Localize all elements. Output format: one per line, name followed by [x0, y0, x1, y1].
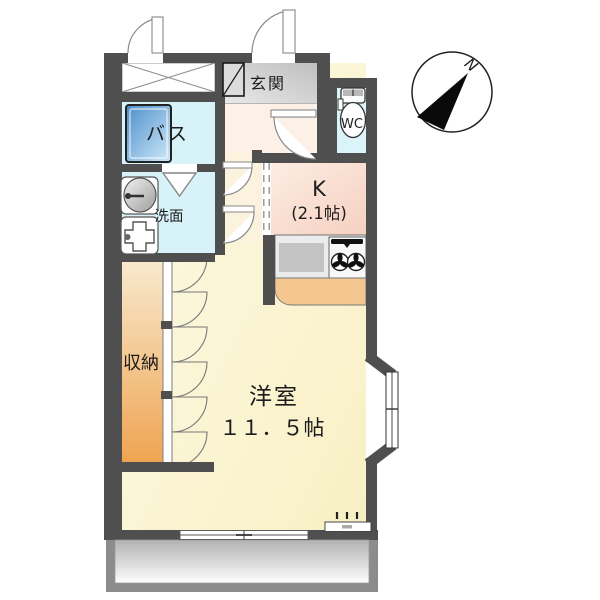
main-room-label: 洋室 [249, 384, 299, 410]
wall-bath-washroom [197, 164, 215, 172]
floor-plan-drawing: N 玄関 バス 洗面 WC K (2.1帖) 収納 洋室 １１．５帖 [0, 0, 600, 600]
sliding-window [180, 531, 308, 540]
bath-label: バス [146, 123, 190, 145]
entry-door [128, 17, 163, 63]
door-leaf [283, 10, 295, 53]
kitchen-label: K [312, 177, 327, 201]
counter-extension [275, 278, 366, 305]
main-room-size-label: １１．５帖 [220, 416, 325, 440]
wall-bath-washroom [122, 164, 162, 172]
wall-stub [252, 150, 262, 163]
washing-machine-icon [121, 217, 158, 254]
compass-icon: N [412, 52, 492, 132]
door-leaf [223, 162, 252, 168]
kitchen-sink-icon [279, 243, 324, 272]
wall-genkan-right [317, 53, 330, 163]
door-leaf [271, 110, 316, 117]
washroom-label: 洗面 [155, 208, 184, 225]
door-leaf [223, 206, 254, 212]
burner-icon [331, 253, 349, 271]
sink-icon [121, 177, 158, 214]
wall-kitchen-top [262, 153, 377, 163]
wall-right-upper [366, 78, 377, 362]
kitchen-counter [275, 235, 366, 305]
folding-door-pivot [161, 321, 172, 329]
floor-plan: N 玄関 バス 洗面 WC K (2.1帖) 収納 洋室 １１．５帖 [0, 0, 600, 600]
burner-icon [347, 253, 365, 271]
balcony [106, 540, 378, 592]
bay-window [368, 356, 398, 464]
kitchen-size-label: (2.1帖) [291, 204, 347, 223]
folding-door-pivot [161, 391, 172, 399]
door-leaf [152, 17, 163, 53]
grill-bar [331, 239, 363, 244]
wall-wc-left [330, 88, 337, 163]
wc-label: WC [341, 117, 363, 132]
wall-bath-top [122, 92, 225, 102]
entry-door [252, 10, 295, 63]
wall-kitchen-stub [263, 235, 275, 305]
open-partition [262, 163, 271, 235]
wall-left [104, 53, 122, 540]
wall-storage-bottom [122, 462, 214, 472]
shoe-cabinet-icon [223, 63, 244, 96]
storage-label: 収納 [123, 353, 159, 374]
genkan-label: 玄関 [250, 74, 286, 93]
